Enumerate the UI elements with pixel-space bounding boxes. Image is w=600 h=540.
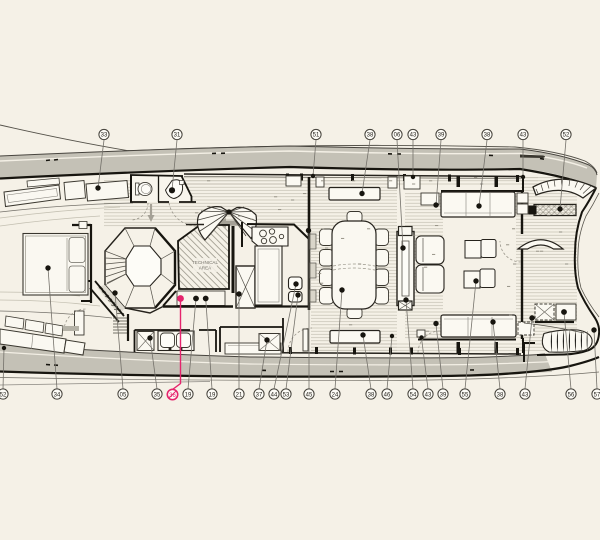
svg-text:37: 37 — [256, 392, 263, 398]
svg-text:34: 34 — [54, 392, 61, 398]
svg-text:43: 43 — [425, 392, 432, 398]
svg-text:36: 36 — [169, 393, 176, 399]
svg-text:38: 38 — [368, 392, 375, 398]
svg-text:46: 46 — [384, 392, 391, 398]
svg-text:AREA: AREA — [199, 266, 212, 271]
svg-text:35: 35 — [154, 392, 161, 398]
svg-text:57: 57 — [594, 392, 600, 398]
svg-text:45: 45 — [306, 392, 313, 398]
svg-text:43: 43 — [522, 392, 529, 398]
svg-text:05: 05 — [120, 392, 127, 398]
svg-text:52: 52 — [563, 133, 570, 139]
svg-text:19: 19 — [209, 392, 216, 398]
svg-text:39: 39 — [440, 392, 447, 398]
svg-text:53: 53 — [283, 392, 290, 398]
svg-text:51: 51 — [313, 133, 320, 139]
svg-text:43: 43 — [410, 133, 417, 139]
svg-text:38: 38 — [497, 392, 504, 398]
svg-text:31: 31 — [174, 133, 181, 139]
svg-text:39: 39 — [438, 133, 445, 139]
svg-text:52: 52 — [0, 392, 7, 398]
svg-text:21: 21 — [236, 392, 243, 398]
svg-text:43: 43 — [520, 133, 527, 139]
svg-text:06: 06 — [394, 133, 401, 139]
svg-text:19: 19 — [185, 392, 192, 398]
svg-text:TECHNICAL: TECHNICAL — [192, 260, 218, 265]
svg-text:38: 38 — [484, 133, 491, 139]
svg-text:54: 54 — [410, 392, 417, 398]
svg-text:38: 38 — [367, 133, 374, 139]
svg-text:24: 24 — [332, 392, 339, 398]
svg-text:33: 33 — [101, 133, 108, 139]
svg-text:55: 55 — [462, 392, 469, 398]
svg-text:56: 56 — [568, 392, 575, 398]
svg-text:44: 44 — [271, 392, 278, 398]
